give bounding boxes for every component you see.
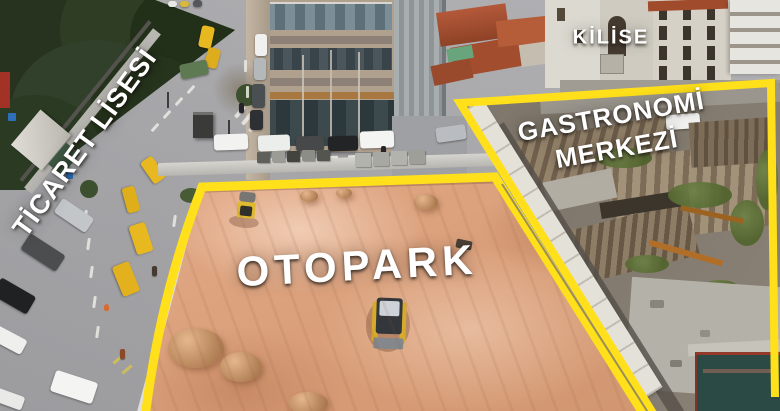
- church-label-text: KİLİSE: [573, 27, 649, 49]
- otopark-outline: [145, 177, 646, 411]
- aerial-photo: TİCARET LİSESİ KİLİSE GASTRONOMİ MERKEZİ…: [0, 0, 780, 411]
- annotation-overlay: [0, 0, 780, 411]
- church-label: KİLİSE: [573, 27, 649, 50]
